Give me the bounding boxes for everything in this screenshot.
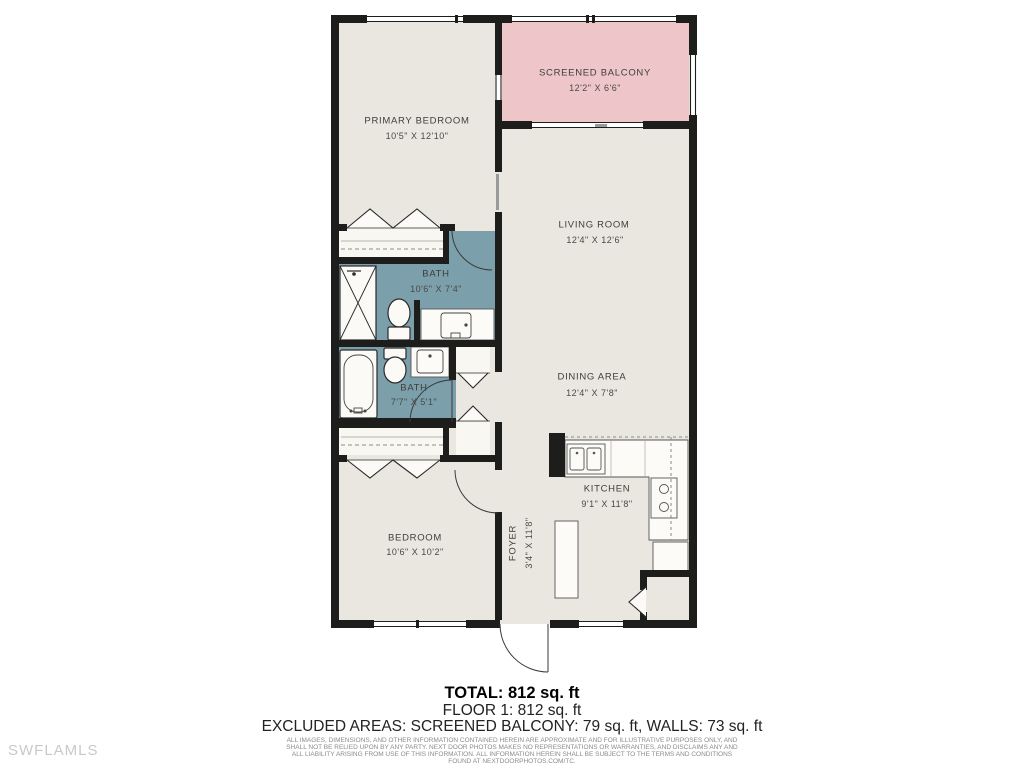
shower-valve-dot bbox=[352, 272, 356, 276]
sink-drain bbox=[576, 452, 579, 455]
hall-closet-top-floor bbox=[456, 347, 490, 373]
vanity-counter bbox=[421, 309, 494, 340]
room-dims-screened-balcony: 12'2" X 6'6" bbox=[569, 83, 621, 93]
room-label-screened-balcony: SCREENED BALCONY bbox=[539, 68, 651, 79]
pocket-door-leaf bbox=[496, 174, 499, 210]
hall-closet-bottom-floor bbox=[456, 422, 490, 455]
room-dims-bath1: 10'6" X 7'4" bbox=[410, 284, 462, 294]
tub-faucet-dot bbox=[364, 410, 367, 413]
room-label-bath1: BATH bbox=[422, 269, 449, 280]
room-dims-bath2: 7'7" X 5'1" bbox=[391, 397, 437, 407]
kitchen-peninsula bbox=[555, 521, 578, 598]
disclaimer-text: ALL IMAGES, DIMENSIONS, AND OTHER INFORM… bbox=[286, 737, 738, 766]
toilet-icon bbox=[388, 299, 410, 327]
sink-drain bbox=[464, 323, 467, 326]
slider-handle bbox=[595, 124, 607, 127]
toilet-icon bbox=[384, 357, 406, 383]
bedroom-closet-floor bbox=[339, 428, 443, 455]
room-label-bath2: BATH bbox=[400, 383, 427, 394]
room-label-living-room: LIVING ROOM bbox=[558, 220, 629, 231]
room-dims-dining-area: 12'4" X 7'8" bbox=[566, 388, 618, 398]
room-dims-living-room: 12'4" X 12'6" bbox=[566, 235, 623, 245]
room-label-kitchen: KITCHEN bbox=[584, 484, 631, 495]
toilet-tank bbox=[388, 327, 410, 340]
room-dims-foyer: 3'4" X 11'8" bbox=[524, 517, 534, 568]
floor-plan-drawing bbox=[0, 0, 1024, 768]
floor-plan-page: PRIMARY BEDROOM 10'5" X 12'10" SCREENED … bbox=[0, 0, 1024, 768]
room-label-dining-area: DINING AREA bbox=[558, 372, 627, 383]
sink-drain bbox=[593, 452, 596, 455]
primary-closet-floor bbox=[337, 227, 445, 258]
entry-door-arc bbox=[500, 624, 548, 672]
room-dims-bedroom: 10'6" X 10'2" bbox=[386, 547, 443, 557]
mls-watermark: SWFLAMLS bbox=[8, 742, 99, 759]
excluded-areas-text: EXCLUDED AREAS: SCREENED BALCONY: 79 sq.… bbox=[262, 718, 763, 736]
total-area-text: TOTAL: 812 sq. ft bbox=[444, 684, 579, 703]
tub-faucet-dot bbox=[350, 410, 353, 413]
stove-icon bbox=[651, 478, 677, 518]
refrigerator-icon bbox=[653, 542, 688, 572]
room-dims-kitchen: 9'1" X 11'8" bbox=[581, 499, 632, 509]
room-label-foyer: FOYER bbox=[508, 525, 519, 561]
sink-drain bbox=[428, 354, 431, 357]
room-label-primary-bedroom: PRIMARY BEDROOM bbox=[364, 116, 469, 127]
room-dims-primary-bedroom: 10'5" X 12'10" bbox=[386, 131, 449, 141]
room-label-bedroom: BEDROOM bbox=[388, 533, 442, 544]
